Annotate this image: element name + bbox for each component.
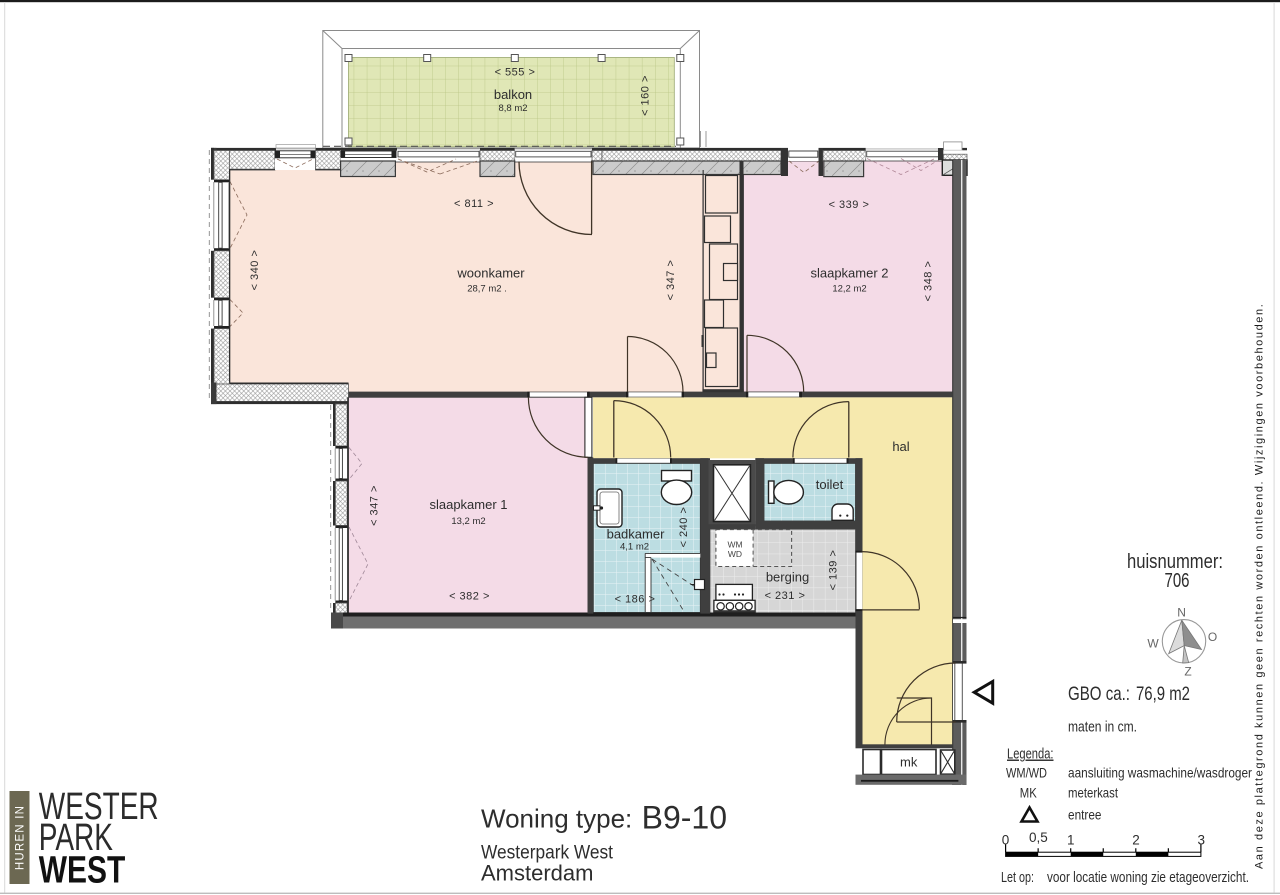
svg-text:maten in cm.: maten in cm. [1068, 720, 1137, 736]
svg-text:< 339 >: < 339 > [829, 199, 870, 211]
svg-text:Aan deze plattegrond kunnen ge: Aan deze plattegrond kunnen geen rechten… [1254, 304, 1266, 869]
svg-text:WM/WD: WM/WD [1006, 765, 1047, 781]
svg-text:76,9 m2: 76,9 m2 [1136, 683, 1190, 705]
svg-text:4,1 m2: 4,1 m2 [620, 542, 649, 553]
svg-text:< 139 >: < 139 > [828, 550, 840, 591]
svg-text:0: 0 [1002, 833, 1010, 848]
svg-text:slaapkamer 1: slaapkamer 1 [429, 497, 507, 512]
svg-text:< 347 >: < 347 > [665, 260, 677, 301]
svg-text:HUREN IN: HUREN IN [15, 805, 27, 870]
svg-text:< 555 >: < 555 > [495, 67, 536, 79]
svg-text:28,7 m2 .: 28,7 m2 . [467, 284, 507, 295]
svg-text:WEST: WEST [39, 849, 125, 891]
svg-text:GBO ca.:: GBO ca.: [1068, 683, 1130, 705]
svg-text:N: N [1177, 606, 1186, 620]
svg-text:WM: WM [727, 540, 742, 550]
svg-text:< 160 >: < 160 > [640, 75, 652, 116]
svg-text:Z: Z [1184, 665, 1191, 679]
svg-text:< 231 >: < 231 > [765, 590, 806, 602]
svg-text:voor locatie woning zie etageo: voor locatie woning zie etageoverzicht. [1047, 870, 1249, 886]
svg-text:slaapkamer 2: slaapkamer 2 [810, 266, 888, 281]
svg-text:1: 1 [1067, 833, 1075, 848]
svg-text:< 382 >: < 382 > [449, 591, 490, 603]
svg-text:706: 706 [1165, 570, 1190, 592]
svg-text:entree: entree [1068, 807, 1102, 823]
svg-text:< 186 >: < 186 > [615, 593, 656, 605]
svg-text:0,5: 0,5 [1029, 830, 1048, 845]
svg-text:< 811 >: < 811 > [454, 198, 494, 210]
svg-text:< 348 >: < 348 > [923, 261, 935, 302]
svg-text:8,8 m2: 8,8 m2 [498, 103, 527, 114]
svg-text:Legenda:: Legenda: [1007, 747, 1054, 763]
svg-text:< 240 >: < 240 > [678, 507, 690, 548]
svg-text:badkamer: badkamer [607, 527, 665, 542]
svg-text:toilet: toilet [816, 477, 844, 492]
svg-text:O: O [1208, 630, 1217, 644]
svg-text:Woning type:: Woning type: [481, 804, 632, 834]
svg-text:balkon: balkon [494, 87, 532, 102]
svg-text:B9-10: B9-10 [642, 800, 727, 836]
svg-text:berging: berging [766, 570, 809, 585]
svg-text:WD: WD [728, 549, 742, 559]
svg-text:mk: mk [900, 755, 918, 770]
svg-text:2: 2 [1132, 833, 1140, 848]
svg-text:W: W [1147, 637, 1159, 651]
svg-text:woonkamer: woonkamer [456, 266, 525, 281]
svg-text:13,2 m2: 13,2 m2 [451, 516, 485, 527]
svg-text:< 347 >: < 347 > [369, 485, 381, 526]
svg-text:hal: hal [892, 439, 909, 454]
svg-text:Amsterdam: Amsterdam [481, 861, 593, 886]
svg-text:12,2 m2: 12,2 m2 [832, 284, 866, 295]
svg-text:aansluiting wasmachine/wasdrog: aansluiting wasmachine/wasdroger [1068, 765, 1252, 781]
svg-text:meterkast: meterkast [1068, 785, 1118, 801]
svg-text:3: 3 [1197, 833, 1205, 848]
svg-text:< 340 >: < 340 > [249, 250, 261, 291]
svg-text:MK: MK [1020, 785, 1038, 801]
svg-text:Let op:: Let op: [1001, 870, 1034, 886]
